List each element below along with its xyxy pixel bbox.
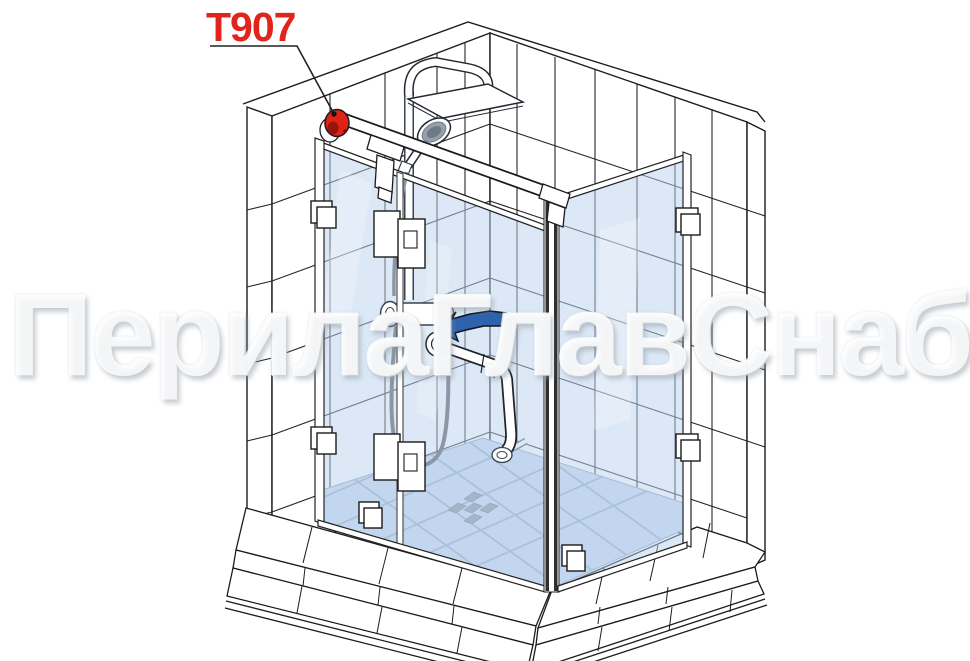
mixer-valve [381,302,454,327]
right-wall-edge-strip [747,122,765,568]
diagram-canvas: T907 [0,0,970,661]
wall-flange-part [325,110,349,137]
corner-post [544,200,559,592]
right-wall-clamp-upper [676,208,700,235]
right-wall-clamp-lower [676,434,700,461]
shower-enclosure-diagram: T907 ПерилаГлавСнаб [0,0,970,661]
part-callout: T907 [206,4,333,112]
left-wall-edge-strip [247,107,272,559]
part-label: T907 [206,4,295,50]
